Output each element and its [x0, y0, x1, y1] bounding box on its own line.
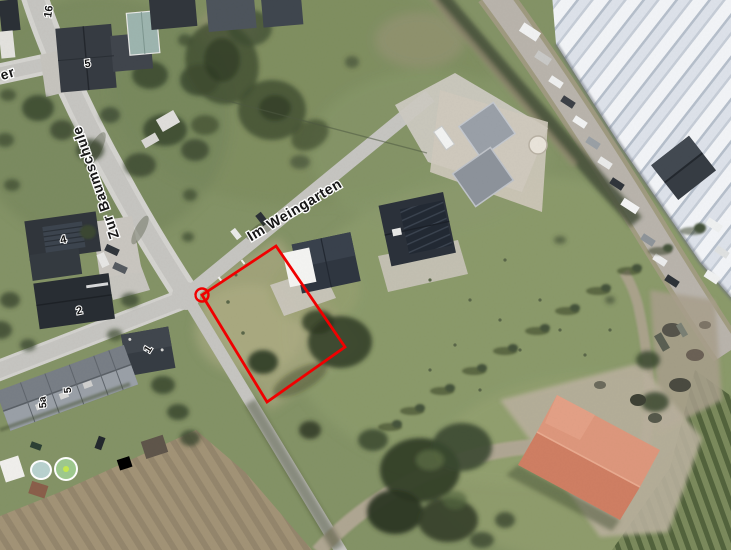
noise-overlay — [0, 0, 731, 550]
map-container[interactable]: Im Weingarten Zur Baumschule er 16 5 4 2… — [0, 0, 731, 550]
aerial-map: Im Weingarten Zur Baumschule er 16 5 4 2… — [0, 0, 731, 550]
